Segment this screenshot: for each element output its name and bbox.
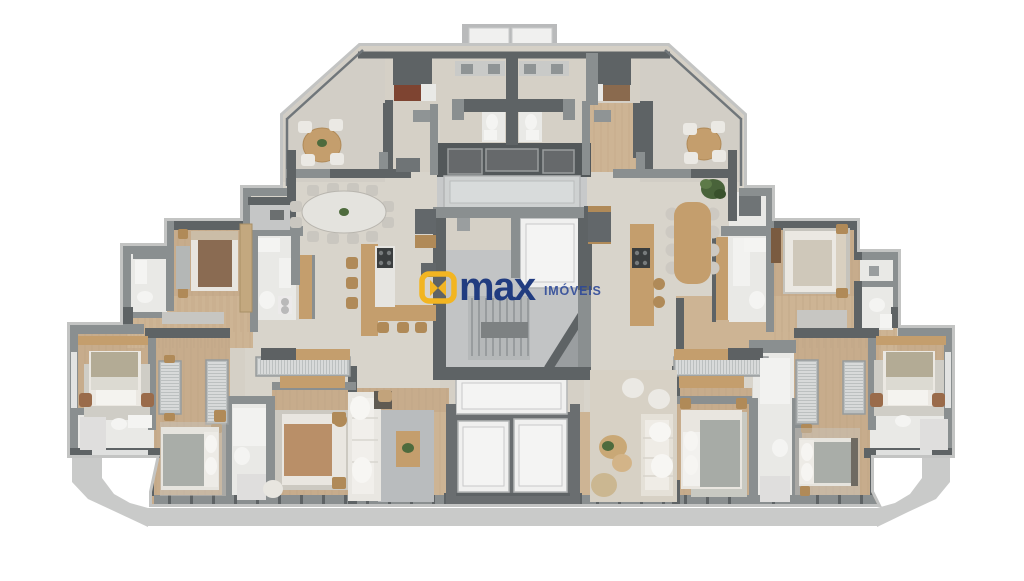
- svg-text:max: max: [459, 265, 536, 309]
- svg-text:IMÓVEIS: IMÓVEIS: [544, 283, 602, 298]
